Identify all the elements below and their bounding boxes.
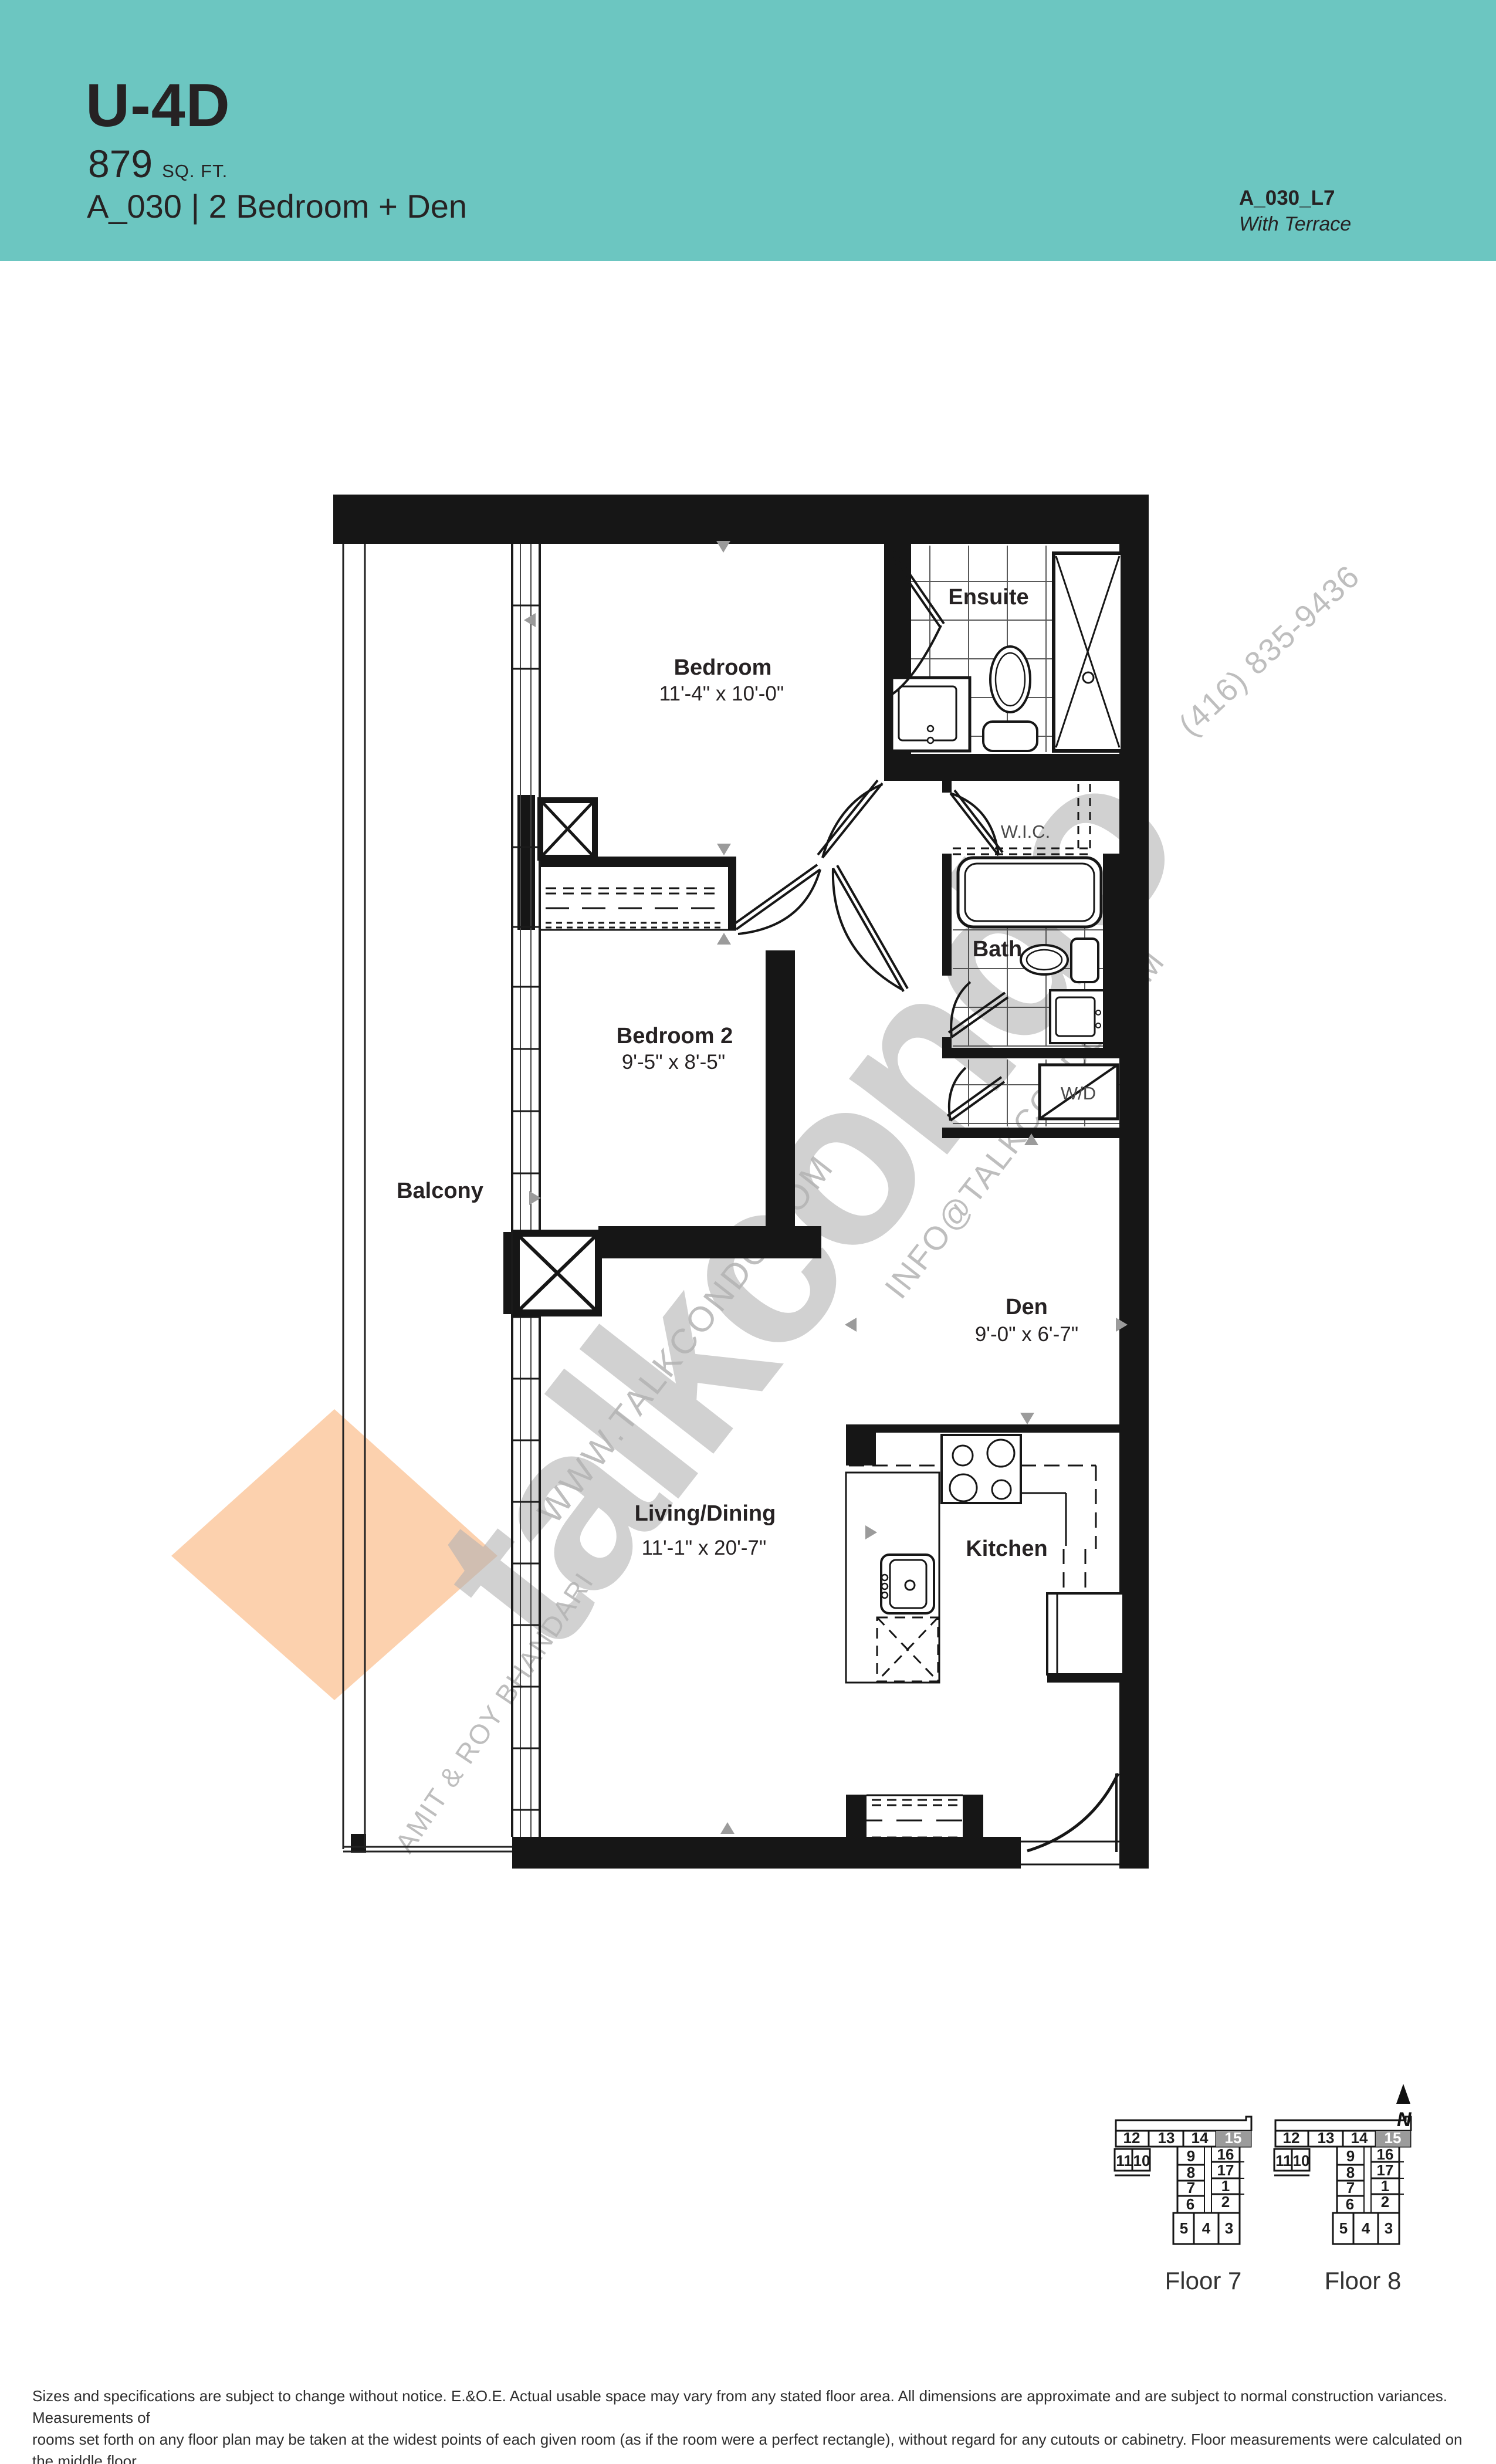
svg-text:4: 4 — [1362, 2219, 1370, 2237]
svg-text:12: 12 — [1283, 2129, 1300, 2147]
svg-text:1: 1 — [1381, 2177, 1389, 2195]
bedroom2-door — [733, 865, 820, 934]
wic-label: W.I.C. — [1001, 821, 1050, 842]
svg-text:12: 12 — [1123, 2129, 1140, 2147]
svg-text:16: 16 — [1377, 2145, 1394, 2163]
den-dims: 9'-0" x 6'-7" — [975, 1323, 1078, 1346]
den-label: Den — [1006, 1295, 1048, 1319]
svg-text:7: 7 — [1346, 2179, 1355, 2196]
disclaimer-text: Sizes and specifications are subject to … — [32, 2385, 1470, 2464]
north-arrow-icon — [1396, 2084, 1410, 2104]
watermark-phone: (416) 835-9436 — [1172, 558, 1366, 743]
marker-top — [716, 541, 730, 553]
svg-text:9: 9 — [1187, 2147, 1195, 2165]
svg-text:17: 17 — [1217, 2161, 1234, 2179]
svg-text:11: 11 — [1275, 2152, 1292, 2169]
svg-text:4: 4 — [1202, 2219, 1211, 2237]
north-arrow: N — [1396, 2084, 1412, 2131]
floor-keys: N — [1115, 2084, 1412, 2294]
svg-text:10: 10 — [1293, 2152, 1310, 2169]
fridge — [1047, 1593, 1123, 1674]
floor8-label: Floor 8 — [1325, 2267, 1402, 2294]
bedroom2-dims: 9'-5" x 8'-5" — [622, 1051, 725, 1074]
svg-text:14: 14 — [1351, 2129, 1368, 2147]
svg-text:5: 5 — [1339, 2219, 1348, 2237]
bathtub — [958, 858, 1101, 927]
floor7-label: Floor 7 — [1165, 2267, 1242, 2294]
marker-kitchen — [1020, 1413, 1034, 1424]
svg-text:3: 3 — [1225, 2219, 1233, 2237]
svg-text:6: 6 — [1186, 2195, 1194, 2213]
bath-sink — [1050, 990, 1104, 1043]
svg-text:5: 5 — [1180, 2219, 1188, 2237]
key7-numbers: 12 13 14 15 11 10 9 8 7 6 16 17 1 2 5 4 — [1116, 2129, 1241, 2237]
bedroom-door — [818, 780, 882, 858]
svg-text:13: 13 — [1318, 2129, 1335, 2147]
living-dims: 11'-1" x 20'-7" — [642, 1536, 767, 1559]
ensuite-label: Ensuite — [948, 585, 1028, 610]
column-x-box-1 — [540, 800, 595, 858]
floor-key-7: 12 13 14 15 11 10 9 8 7 6 16 17 1 2 5 4 — [1115, 2117, 1251, 2294]
svg-text:11: 11 — [1116, 2152, 1132, 2169]
svg-text:10: 10 — [1133, 2152, 1150, 2169]
kitchen-island — [846, 1473, 939, 1683]
svg-text:2: 2 — [1381, 2193, 1389, 2211]
marker-bedroom-window — [524, 613, 536, 627]
kitchen-sink — [881, 1555, 934, 1613]
svg-text:15: 15 — [1385, 2129, 1402, 2147]
bath-label: Bath — [973, 937, 1022, 962]
entry-door — [1021, 1773, 1121, 1864]
disclaimer-line-1: Sizes and specifications are subject to … — [32, 2385, 1470, 2429]
svg-text:14: 14 — [1192, 2129, 1209, 2147]
svg-text:16: 16 — [1217, 2145, 1234, 2163]
svg-text:15: 15 — [1225, 2129, 1242, 2147]
svg-text:6: 6 — [1346, 2195, 1354, 2213]
marker-bottom — [720, 1822, 735, 1834]
living-label: Living/Dining — [635, 1501, 776, 1526]
stove-burners — [942, 1435, 1021, 1503]
bedroom-dims: 11'-4" x 10'-0" — [659, 682, 784, 705]
marker-divider-top — [717, 844, 731, 855]
wd-label: W/D — [1061, 1083, 1096, 1104]
kitchen-label: Kitchen — [966, 1536, 1047, 1561]
svg-text:9: 9 — [1346, 2147, 1355, 2165]
bedroom-label: Bedroom — [674, 655, 772, 680]
bedroom2-label: Bedroom 2 — [617, 1024, 733, 1048]
svg-text:1: 1 — [1221, 2177, 1230, 2195]
svg-text:17: 17 — [1377, 2161, 1394, 2179]
marker-divider-bottom — [717, 933, 731, 945]
svg-text:7: 7 — [1187, 2179, 1195, 2196]
floorplan-canvas: talkcondo WWW.TALKCONDO.COM INFO@TALKCON… — [0, 0, 1496, 2464]
balcony-label: Balcony — [397, 1179, 483, 1203]
ensuite-sink — [892, 678, 970, 751]
svg-text:13: 13 — [1158, 2129, 1175, 2147]
disclaimer-line-2: rooms set forth on any floor plan may be… — [32, 2429, 1470, 2464]
shower-stall — [1054, 553, 1122, 751]
key8-numbers: 12 13 14 15 11 10 9 8 7 6 16 17 1 2 5 4 — [1275, 2129, 1401, 2237]
svg-text:2: 2 — [1221, 2193, 1230, 2211]
page: U-4D 879 SQ. FT. A_030 | 2 Bedroom + Den… — [0, 0, 1496, 2464]
floor-key-8: 12 13 14 15 11 10 9 8 7 6 16 17 1 2 5 4 — [1274, 2117, 1411, 2294]
svg-text:3: 3 — [1385, 2219, 1393, 2237]
column-x-box-2 — [516, 1233, 598, 1313]
